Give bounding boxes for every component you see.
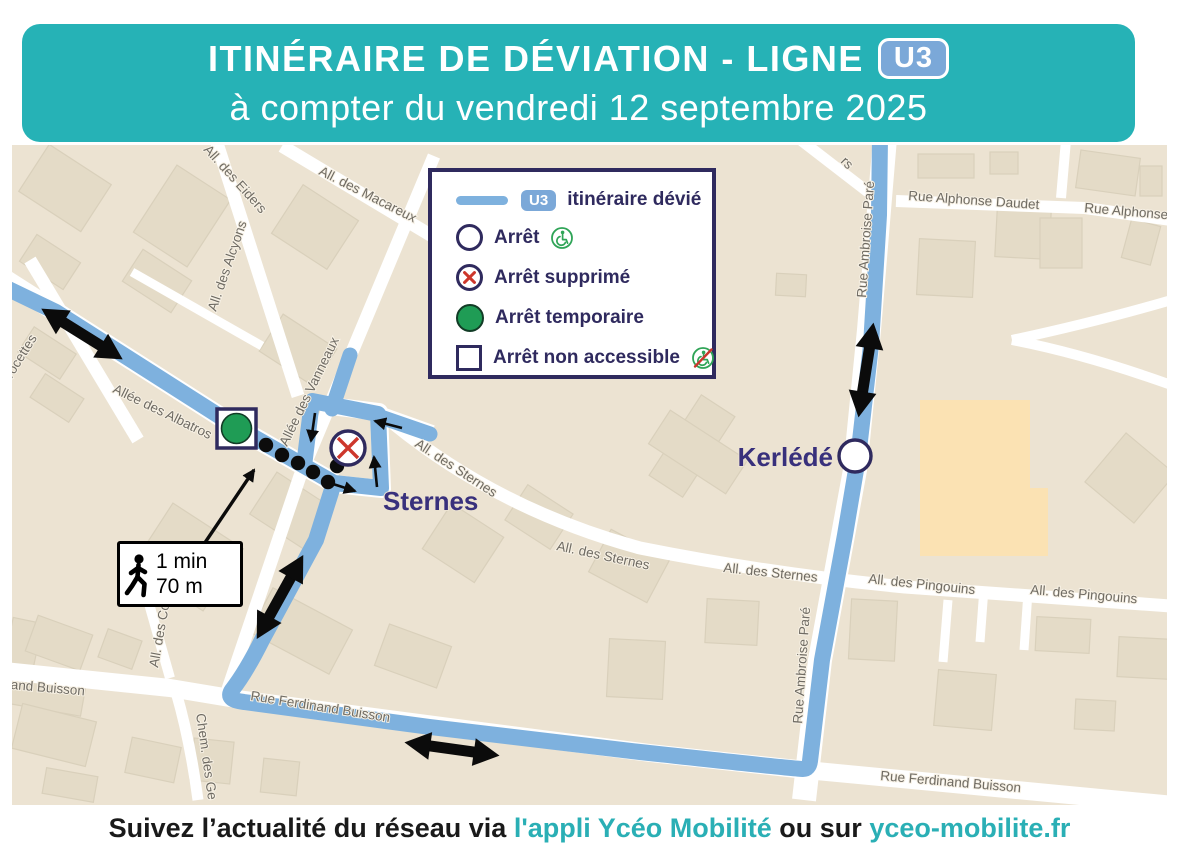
walk-distance: 70 m [156, 574, 234, 599]
map-legend: U3 itinéraire dévié Arrêt Arrêt supprimé… [428, 168, 716, 379]
line-badge-u3: U3 [878, 38, 949, 79]
footer-message: Suivez l’actualité du réseau via l'appli… [0, 813, 1179, 844]
stop-label-sternes: Sternes [383, 486, 478, 516]
footer-app-link[interactable]: l'appli Ycéo Mobilité [514, 813, 772, 843]
footer-prefix: Suivez l’actualité du réseau via [109, 813, 507, 843]
legend-not-accessible-label: Arrêt non accessible [493, 347, 680, 369]
header-banner: ITINÉRAIRE DE DÉVIATION - LIGNE U3 à com… [22, 24, 1135, 142]
removed-stop-symbol [456, 264, 483, 291]
footer-connector: ou sur [779, 813, 862, 843]
not-accessible-stop-symbol [456, 345, 482, 371]
legend-row-stop: Arrêt [456, 224, 702, 251]
footer-site-link[interactable]: yceo-mobilite.fr [869, 813, 1070, 843]
walk-note-box: 1 min 70 m [117, 541, 243, 607]
stop-label-kerlede: Kerlédé [738, 442, 833, 472]
page-title: ITINÉRAIRE DE DÉVIATION - LIGNE [208, 38, 864, 80]
legend-line-badge-u3: U3 [521, 190, 556, 211]
legend-removed-label: Arrêt supprimé [494, 267, 630, 289]
legend-row-not-accessible: Arrêt non accessible [456, 345, 702, 371]
landmark-building [920, 400, 1048, 556]
legend-row-removed: Arrêt supprimé [456, 264, 702, 291]
legend-stop-label: Arrêt [494, 227, 539, 249]
deviation-poster: { "header": { "title": "ITINÉRAIRE DE DÉ… [0, 0, 1179, 854]
wheelchair-not-accessible-icon [691, 346, 715, 370]
legend-row-route: U3 itinéraire dévié [456, 189, 702, 211]
stop-removed-marker-sternes [331, 431, 365, 465]
legend-row-temporary: Arrêt temporaire [456, 304, 702, 332]
temporary-stop-symbol [456, 304, 484, 332]
deviation-map: Sternes Kerlédé Avocettes All. des Eider… [12, 145, 1167, 805]
header-title-row: ITINÉRAIRE DE DÉVIATION - LIGNE U3 [208, 38, 949, 80]
legend-route-label: itinéraire dévié [567, 189, 701, 211]
walk-duration: 1 min [156, 549, 234, 574]
stop-symbol [456, 224, 483, 251]
effective-date-subtitle: à compter du vendredi 12 septembre 2025 [230, 87, 928, 129]
wheelchair-accessible-icon [550, 226, 574, 250]
legend-temporary-label: Arrêt temporaire [495, 307, 644, 329]
stop-temporary-marker [217, 409, 256, 448]
pedestrian-icon [124, 553, 152, 599]
stop-marker-kerlede [839, 440, 871, 472]
route-line-swatch [456, 196, 508, 205]
